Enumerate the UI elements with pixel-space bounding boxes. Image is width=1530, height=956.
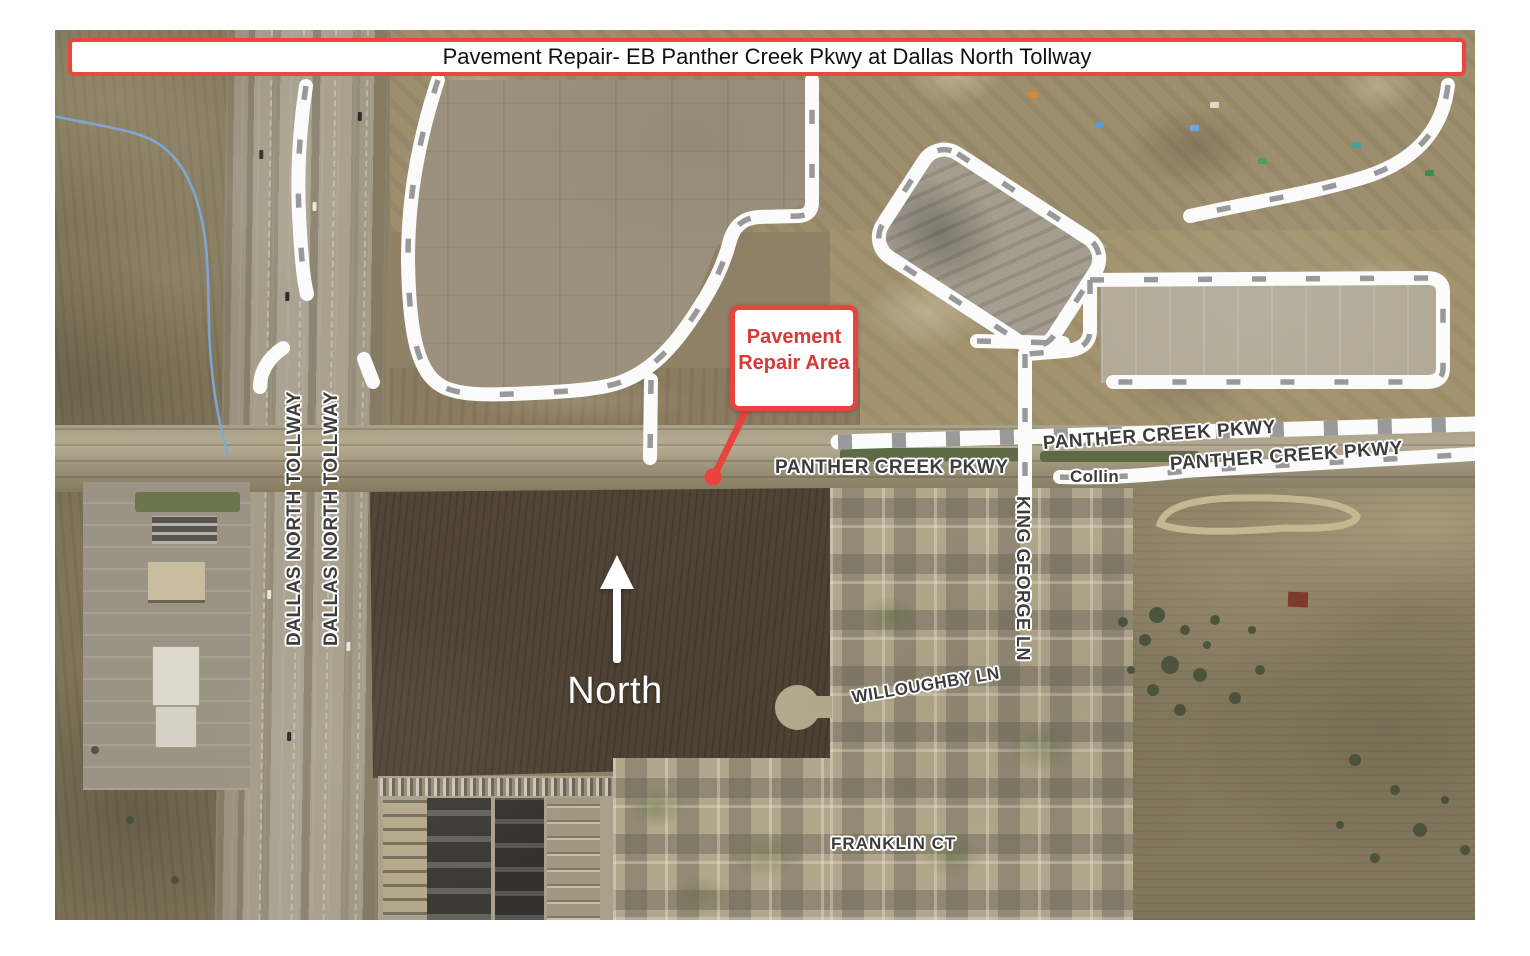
road-label-dallas-north-tollway-left: DALLAS NORTH TOLLWAY xyxy=(284,391,306,646)
dirt-track-loop xyxy=(1160,498,1357,531)
county-label-collin: Collin xyxy=(1070,467,1119,487)
top-right-curve-road xyxy=(1190,85,1448,216)
overlay-road-casings xyxy=(260,80,1475,508)
frontage-stub-road xyxy=(298,86,307,294)
repair-point-dot xyxy=(705,469,722,486)
pavement-repair-callout: Pavement Repair Area xyxy=(730,305,858,411)
road-label-dallas-north-tollway-right: DALLAS NORTH TOLLWAY xyxy=(321,391,343,646)
warehouse-loop-road xyxy=(870,140,1109,355)
pavement-repair-exhibit: PANTHER CREEK PKWY PANTHER CREEK PKWY PA… xyxy=(0,0,1530,956)
tree-cluster xyxy=(91,607,1470,884)
aerial-map: PANTHER CREEK PKWY PANTHER CREEK PKWY PA… xyxy=(55,30,1475,920)
ramp-hook-road xyxy=(260,348,283,387)
road-label-franklin-ct: FRANKLIN CT xyxy=(831,834,956,854)
east-pad-perimeter-road xyxy=(1090,278,1443,382)
callout-line-1: Pavement xyxy=(735,324,853,350)
callout-line-2: Repair Area xyxy=(735,350,853,376)
page-title: Pavement Repair- EB Panther Creek Pkwy a… xyxy=(443,44,1092,70)
road-label-king-george-ln: KING GEORGE LN xyxy=(1012,496,1033,661)
north-arrow-icon xyxy=(600,555,634,665)
title-banner: Pavement Repair- EB Panther Creek Pkwy a… xyxy=(68,38,1466,76)
creek-line xyxy=(55,116,229,458)
road-label-panther-creek-pkwy-west: PANTHER CREEK PKWY xyxy=(775,457,1009,479)
north-label: North xyxy=(550,670,680,713)
ramp-stub-road xyxy=(364,359,373,382)
road-overlay-layer xyxy=(55,30,1475,920)
